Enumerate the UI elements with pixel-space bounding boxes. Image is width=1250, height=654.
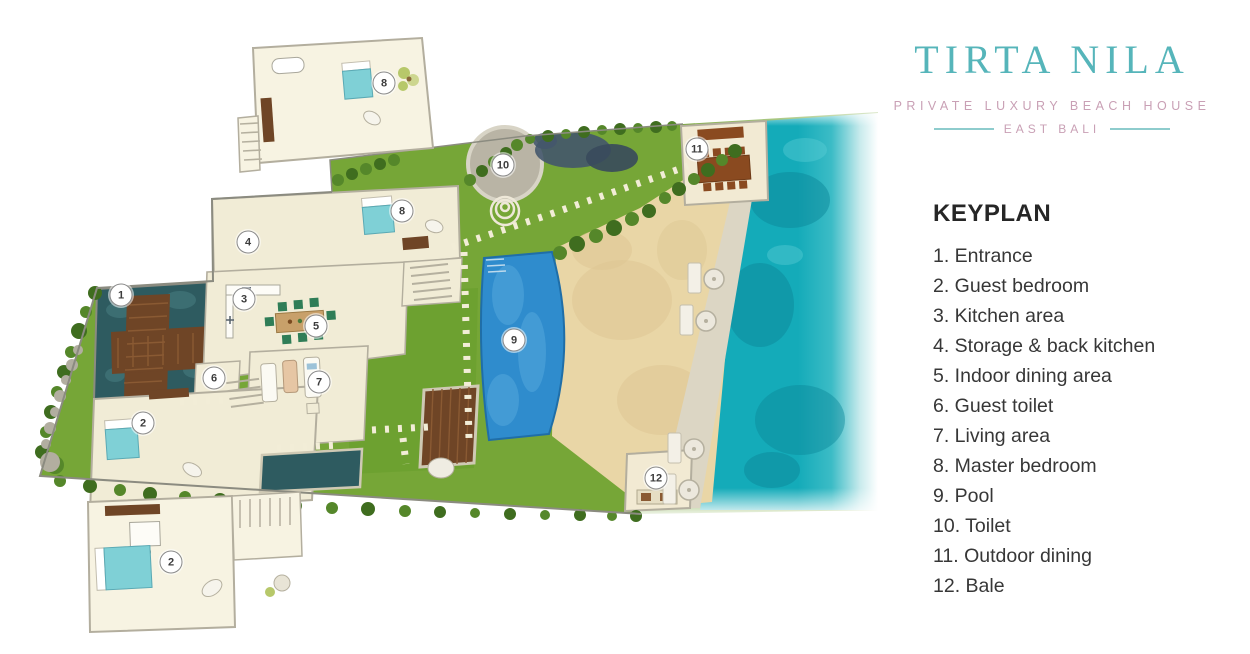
site-plan: 12345678910111282: [0, 0, 900, 654]
brand-block: TIRTA NILA PRIVATE LUXURY BEACH HOUSE EA…: [872, 36, 1232, 136]
keyplan-legend: KEYPLAN 1. Entrance2. Guest bedroom3. Ki…: [933, 200, 1233, 601]
keyplan-item: 3. Kitchen area: [933, 301, 1233, 331]
keyplan-heading: KEYPLAN: [933, 200, 1233, 228]
keyplan-item: 8. Master bedroom: [933, 451, 1233, 481]
page: { "brand": { "title": "TIRTA NILA", "sub…: [0, 0, 1250, 654]
lower-floor-inset: [88, 492, 302, 632]
keyplan-list: 1. Entrance2. Guest bedroom3. Kitchen ar…: [933, 241, 1233, 601]
keyplan-item: 2. Guest bedroom: [933, 271, 1233, 301]
left-rule: [934, 128, 994, 130]
keyplan-item: 5. Indoor dining area: [933, 361, 1233, 391]
keyplan-item: 9. Pool: [933, 481, 1233, 511]
keyplan-item: 10. Toilet: [933, 511, 1233, 541]
bale: [625, 450, 692, 511]
floorplan-graphic: [0, 0, 900, 654]
keyplan-item: 7. Living area: [933, 421, 1233, 451]
keyplan-item: 1. Entrance: [933, 241, 1233, 271]
garden-pond: [260, 449, 362, 492]
right-rule: [1110, 128, 1170, 130]
keyplan-item: 4. Storage & back kitchen: [933, 331, 1233, 361]
pool: [481, 252, 564, 440]
brand-subtitle: PRIVATE LUXURY BEACH HOUSE: [872, 99, 1232, 113]
keyplan-item: 6. Guest toilet: [933, 391, 1233, 421]
pool-deck: [420, 386, 478, 478]
keyplan-item: 12. Bale: [933, 571, 1233, 601]
brand-title: TIRTA NILA: [872, 36, 1232, 83]
brand-location: EAST BALI: [1004, 122, 1100, 136]
keyplan-item: 11. Outdoor dining: [933, 541, 1233, 571]
brand-location-row: EAST BALI: [872, 122, 1232, 136]
